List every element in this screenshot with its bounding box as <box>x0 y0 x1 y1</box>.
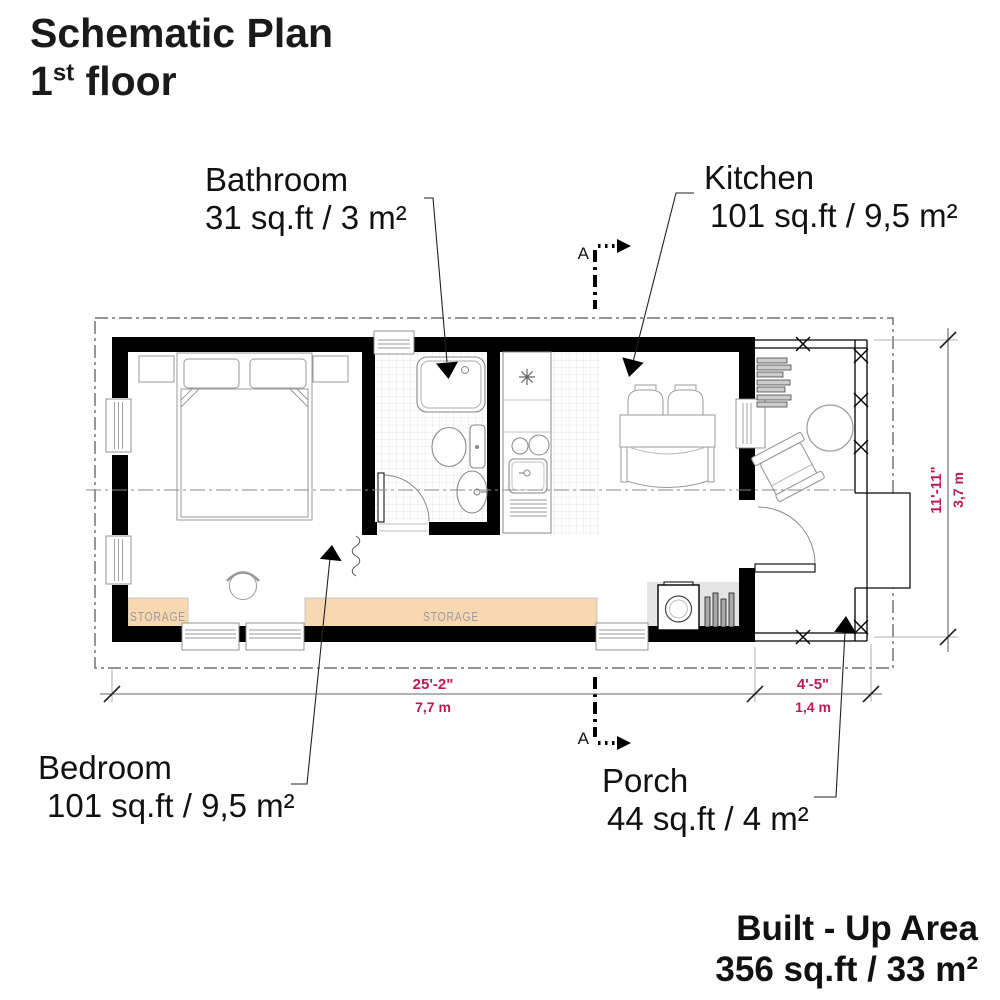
bathroom-sink <box>457 471 487 513</box>
washing-machine <box>658 582 699 630</box>
bed <box>139 353 348 520</box>
porch-table <box>807 405 853 451</box>
pillow <box>184 359 239 388</box>
house-width-imperial: 25'-2" <box>413 676 454 693</box>
kitchen-window-bottom <box>596 623 648 650</box>
kitchen-sink <box>509 459 547 493</box>
floor-plan-page: Schematic Plan 1st floor Bathroom 31 sq.… <box>0 0 1000 1000</box>
dimension-bottom: 25'-2" 7,7 m 4'-5" 1,4 m <box>100 644 882 715</box>
kitchen-table-set <box>620 385 715 488</box>
bedroom-chair <box>227 573 259 600</box>
porch-shelves <box>757 358 791 407</box>
chair <box>628 390 663 415</box>
house-width-metric: 7,7 m <box>415 699 451 715</box>
house-depth-imperial: 11'-11" <box>928 466 945 513</box>
fridge-star-icon <box>519 369 535 385</box>
section-marker-bottom: A <box>578 677 631 750</box>
entry-steps <box>867 493 910 588</box>
storage-label-1: STORAGE <box>130 609 186 624</box>
bedroom-leader <box>291 558 330 784</box>
section-letter-bottom: A <box>578 729 590 748</box>
floor-plan-drawing: STORAGE STORAGE A A <box>0 0 1000 1000</box>
nightstand <box>139 356 174 382</box>
bedroom-window-bottom-2 <box>246 623 304 650</box>
porch-width-metric: 1,4 m <box>795 699 831 715</box>
blanket <box>181 389 308 517</box>
table <box>620 415 715 447</box>
entrance-door <box>755 507 815 572</box>
kitchen-leader <box>633 193 694 362</box>
chair <box>668 390 703 415</box>
storage-label-2: STORAGE <box>423 609 479 624</box>
bedroom-window-bottom-1 <box>182 623 239 650</box>
kitchen-counter <box>503 352 551 533</box>
nightstand <box>313 356 348 382</box>
bedroom-window-left-1 <box>106 399 131 452</box>
porch-width-imperial: 4'-5" <box>797 676 829 693</box>
section-letter-top: A <box>578 244 590 263</box>
dimension-right: 11'-11" 3,7 m <box>874 328 966 652</box>
kitchen-tile-floor <box>551 352 600 535</box>
bathroom-window-top <box>374 331 414 354</box>
pillow <box>250 359 306 388</box>
house-depth-metric: 3,7 m <box>950 472 966 508</box>
porch-posts <box>796 337 868 644</box>
section-marker-top: A <box>578 239 631 309</box>
bedroom-window-left-2 <box>106 536 131 584</box>
draft-squiggle <box>352 536 360 576</box>
toilet <box>432 425 485 468</box>
